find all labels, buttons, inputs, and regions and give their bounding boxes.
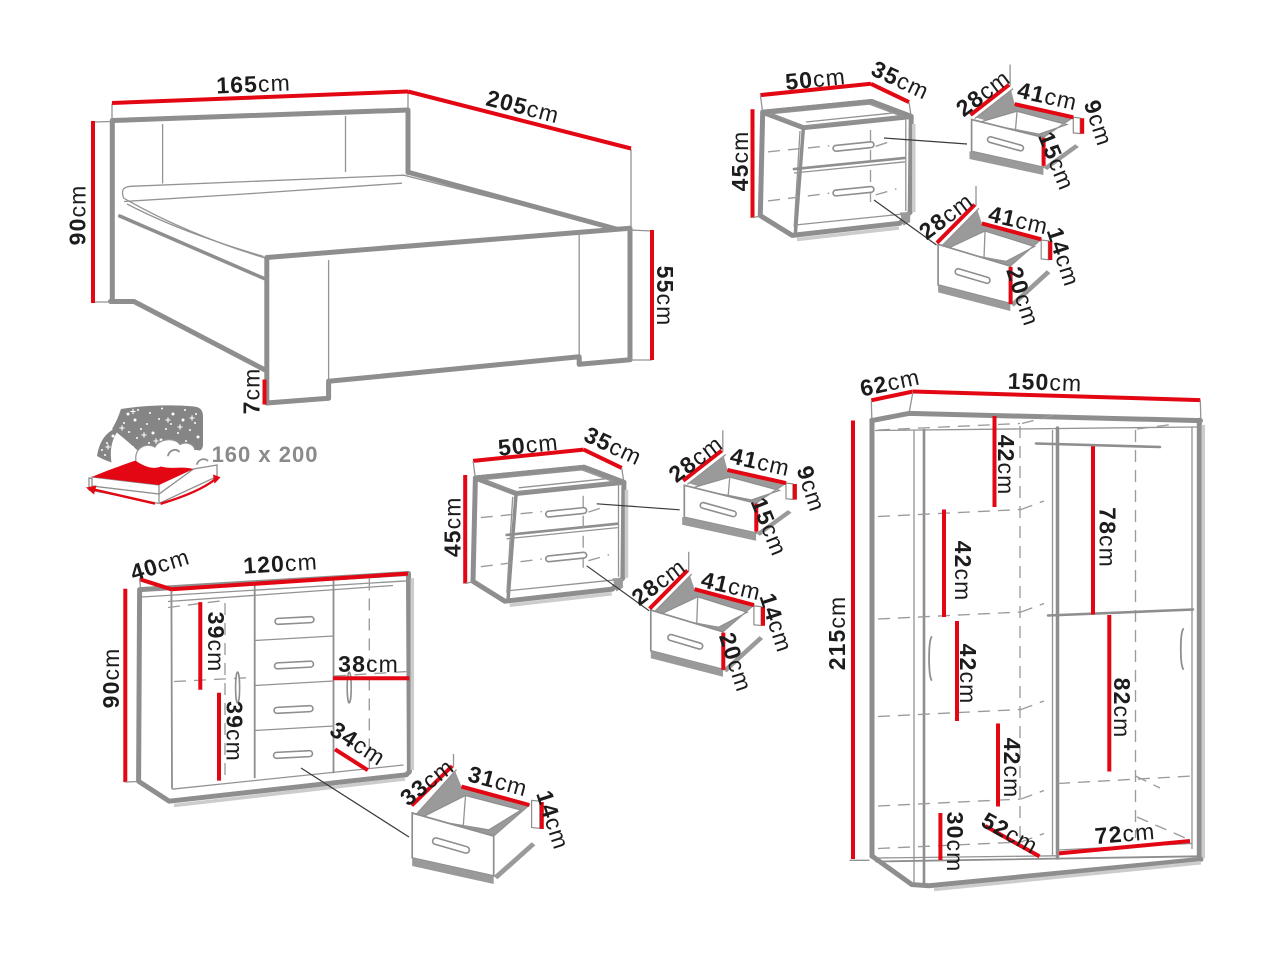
svg-text:39cm: 39cm	[203, 612, 229, 673]
svg-text:7cm: 7cm	[239, 368, 265, 415]
svg-text:165cm: 165cm	[216, 70, 292, 99]
svg-text:160 x 200: 160 x 200	[212, 442, 319, 467]
svg-text:120cm: 120cm	[243, 548, 319, 579]
svg-text:39cm: 39cm	[222, 701, 248, 762]
svg-text:150cm: 150cm	[1007, 368, 1082, 397]
svg-text:72cm: 72cm	[1094, 818, 1157, 849]
svg-text:30cm: 30cm	[942, 812, 968, 873]
svg-text:42cm: 42cm	[993, 435, 1019, 496]
svg-text:55cm: 55cm	[652, 266, 678, 327]
svg-text:82cm: 82cm	[1109, 678, 1135, 739]
svg-text:42cm: 42cm	[950, 541, 976, 602]
svg-text:42cm: 42cm	[999, 738, 1025, 799]
svg-text:78cm: 78cm	[1095, 507, 1121, 568]
svg-text:45cm: 45cm	[727, 131, 753, 192]
svg-text:90cm: 90cm	[65, 185, 91, 246]
svg-text:90cm: 90cm	[98, 648, 124, 709]
svg-text:38cm: 38cm	[338, 651, 399, 677]
svg-text:42cm: 42cm	[955, 644, 981, 705]
svg-text:215cm: 215cm	[824, 596, 850, 671]
